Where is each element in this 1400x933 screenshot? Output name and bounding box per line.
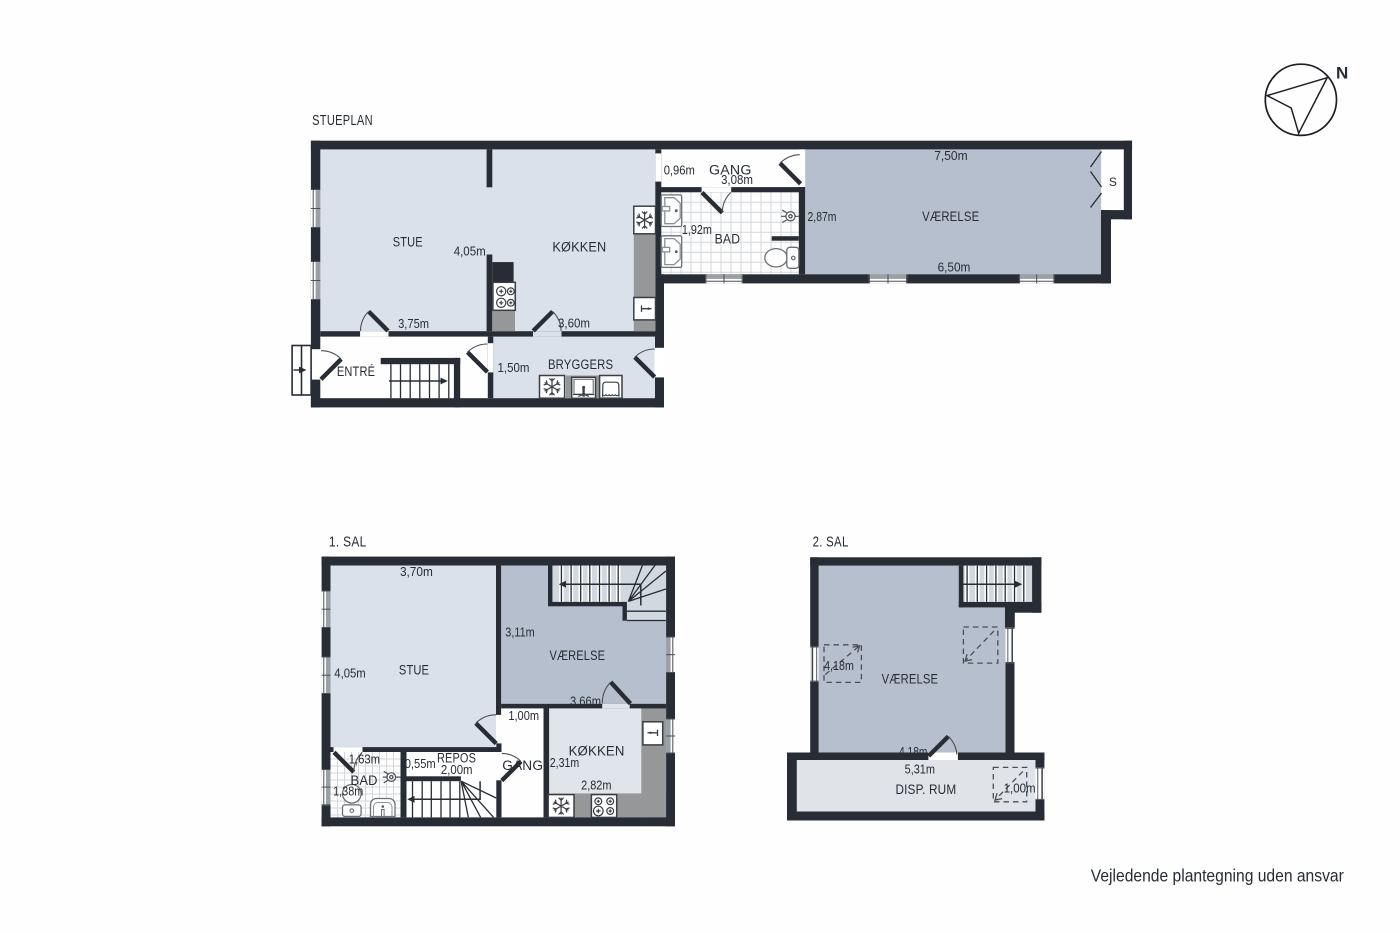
svg-text:ENTRÉ: ENTRÉ [337,363,375,380]
svg-text:S: S [1109,175,1117,189]
svg-text:3,66m: 3,66m [570,694,601,709]
svg-text:3,70m: 3,70m [400,564,433,579]
svg-text:VÆRELSE: VÆRELSE [549,648,605,664]
svg-text:3,08m: 3,08m [721,172,753,187]
svg-text:2. SAL: 2. SAL [813,534,849,550]
svg-text:N: N [1336,64,1348,83]
svg-text:3,75m: 3,75m [398,316,429,331]
svg-text:1,00m: 1,00m [1004,780,1036,795]
svg-text:STUE: STUE [399,662,429,678]
svg-text:1,63m: 1,63m [349,751,380,766]
svg-text:GANG: GANG [502,758,543,774]
svg-text:STUE: STUE [393,234,423,250]
svg-text:0,96m: 0,96m [664,162,695,177]
svg-text:Vejledende plantegning uden an: Vejledende plantegning uden ansvar [1091,865,1344,885]
svg-text:6,50m: 6,50m [938,260,971,275]
svg-text:BRYGGERS: BRYGGERS [548,357,613,373]
svg-text:3,11m: 3,11m [505,624,534,639]
svg-text:VÆRELSE: VÆRELSE [922,209,979,225]
svg-text:STUEPLAN: STUEPLAN [312,113,373,129]
svg-text:2,87m: 2,87m [808,209,837,224]
svg-text:4,18m: 4,18m [824,658,854,673]
svg-text:1. SAL: 1. SAL [329,534,367,550]
svg-text:4,18m: 4,18m [899,744,927,759]
svg-text:1,38m: 1,38m [333,784,363,799]
svg-text:2,82m: 2,82m [581,778,611,793]
svg-text:0,55m: 0,55m [405,756,436,771]
svg-text:3,60m: 3,60m [558,316,590,331]
svg-text:1,50m: 1,50m [498,360,530,375]
svg-text:2,00m: 2,00m [441,762,473,777]
svg-text:5,31m: 5,31m [905,762,935,777]
svg-text:KØKKEN: KØKKEN [552,239,606,255]
svg-text:BAD: BAD [715,232,741,248]
svg-text:KØKKEN: KØKKEN [569,744,625,760]
svg-text:4,05m: 4,05m [334,666,365,681]
svg-text:7,50m: 7,50m [934,148,967,163]
svg-text:DISP. RUM: DISP. RUM [895,782,956,798]
svg-text:VÆRELSE: VÆRELSE [882,671,939,687]
svg-text:4,05m: 4,05m [454,244,486,259]
svg-text:1,92m: 1,92m [682,222,712,237]
svg-text:1,00m: 1,00m [508,708,539,723]
